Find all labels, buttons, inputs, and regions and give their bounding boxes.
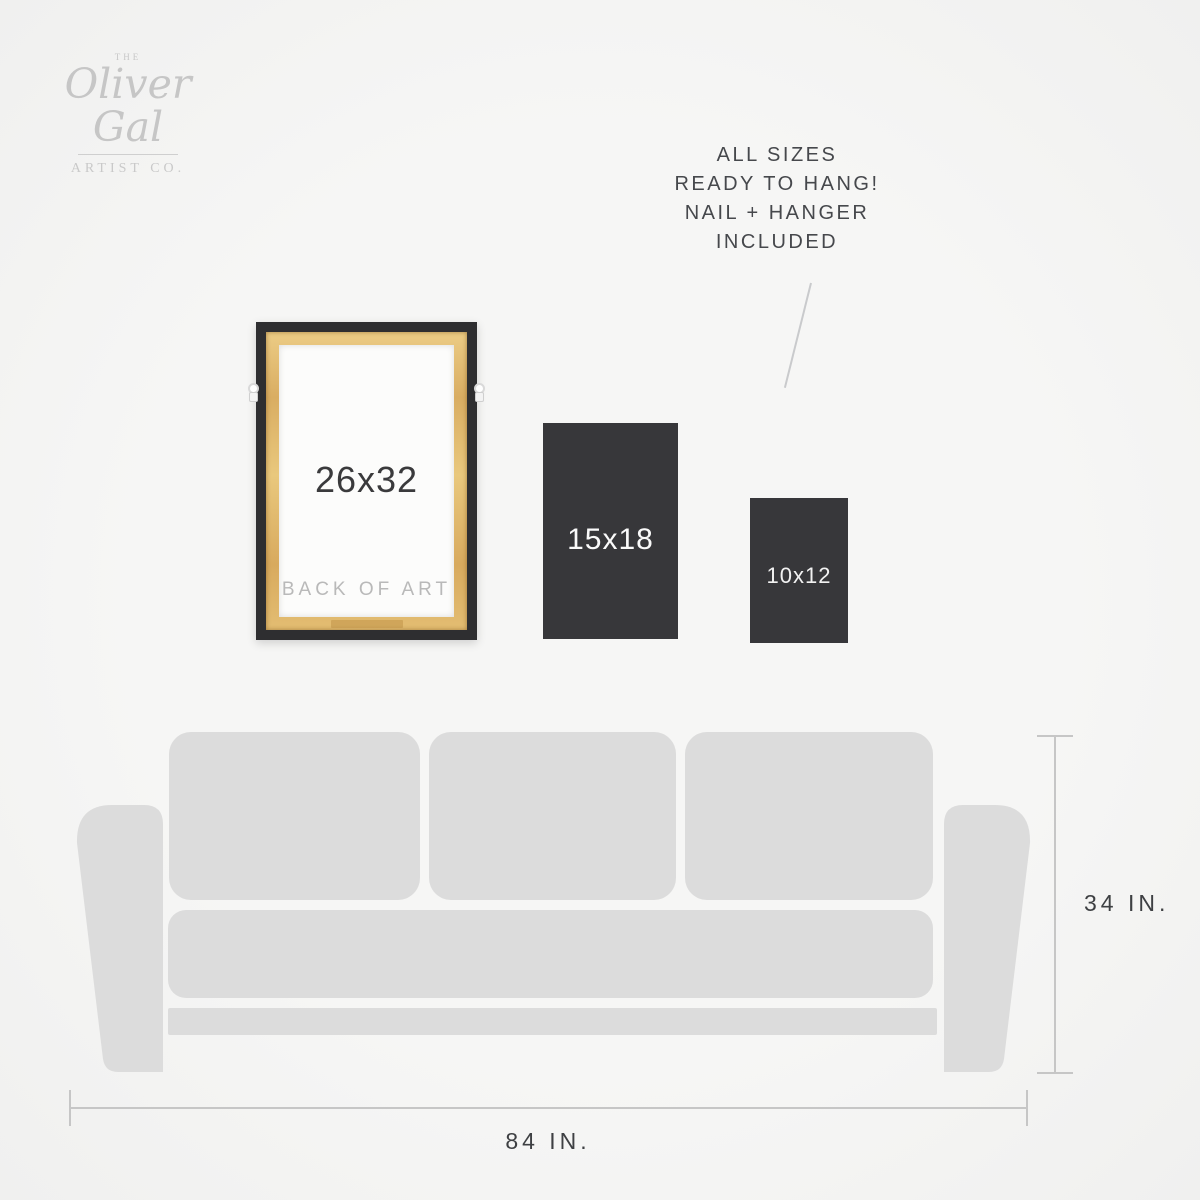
frame-26x32: 26x32 BACK OF ART <box>256 322 477 640</box>
sofa-right-arm <box>944 805 1030 1072</box>
d-ring-hanger-icon <box>474 383 485 400</box>
frame-size-label: 15x18 <box>567 505 654 557</box>
sofa-base <box>168 1008 937 1035</box>
sofa-left-arm <box>77 805 163 1072</box>
sofa-seat-cushion <box>168 910 933 998</box>
wood-stamp-mark <box>331 620 403 628</box>
frame-10x12: 10x12 <box>750 498 848 643</box>
frame-wood-stretcher: 26x32 BACK OF ART <box>266 332 467 630</box>
frame-size-label: 26x32 <box>315 459 418 501</box>
hanger-tab <box>249 392 258 402</box>
width-dimension-line <box>70 1090 1027 1126</box>
hanger-tab <box>475 392 484 402</box>
frame-15x18: 15x18 <box>543 423 678 639</box>
sofa-width-label: 84 IN. <box>478 1128 618 1155</box>
sofa-back-cushion-1 <box>169 732 420 900</box>
size-guide-infographic: THE Oliver Gal ARTIST CO. ALL SIZES READ… <box>0 0 1200 1200</box>
frame-canvas-back: 26x32 BACK OF ART <box>279 345 454 617</box>
sofa-back-cushion-3 <box>685 732 933 900</box>
sofa-back-cushion-2 <box>429 732 676 900</box>
frame-size-label: 10x12 <box>767 552 832 589</box>
back-of-art-label: BACK OF ART <box>279 579 454 601</box>
height-dimension-line <box>1037 736 1073 1073</box>
sofa-height-label: 34 IN. <box>1084 890 1169 917</box>
d-ring-hanger-icon <box>248 383 259 400</box>
